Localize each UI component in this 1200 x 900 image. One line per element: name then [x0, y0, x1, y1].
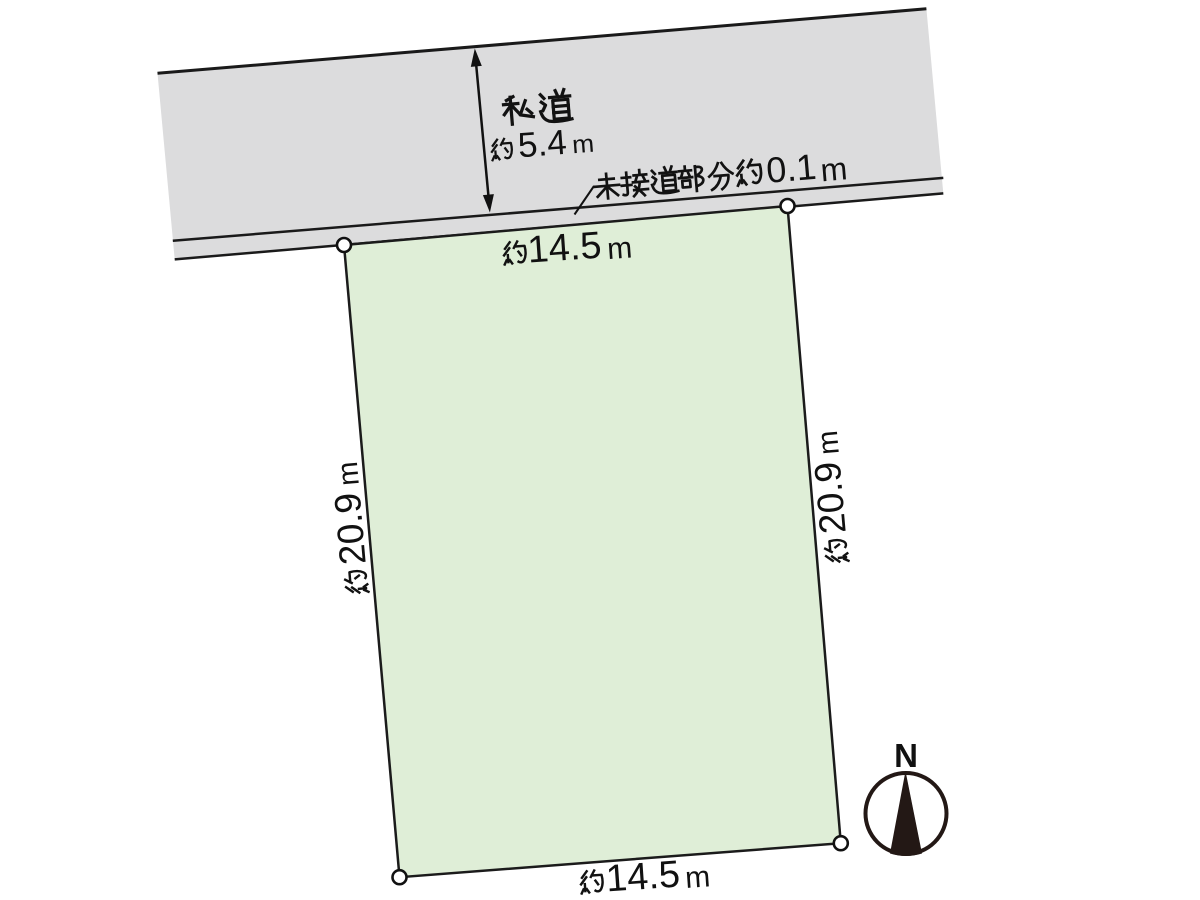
- svg-text:N: N: [894, 737, 918, 774]
- svg-text:14.5: 14.5: [526, 225, 603, 272]
- svg-text:20.9: 20.9: [327, 491, 374, 566]
- svg-text:m: m: [332, 460, 366, 487]
- svg-text:20.9: 20.9: [807, 460, 854, 535]
- svg-text:0.1: 0.1: [765, 146, 818, 191]
- svg-text:m: m: [819, 150, 849, 188]
- svg-text:14.5: 14.5: [605, 853, 682, 900]
- svg-text:5.4: 5.4: [517, 123, 568, 166]
- svg-text:m: m: [812, 429, 846, 456]
- svg-text:m: m: [606, 231, 633, 266]
- svg-text:m: m: [571, 130, 595, 160]
- svg-text:m: m: [684, 860, 711, 895]
